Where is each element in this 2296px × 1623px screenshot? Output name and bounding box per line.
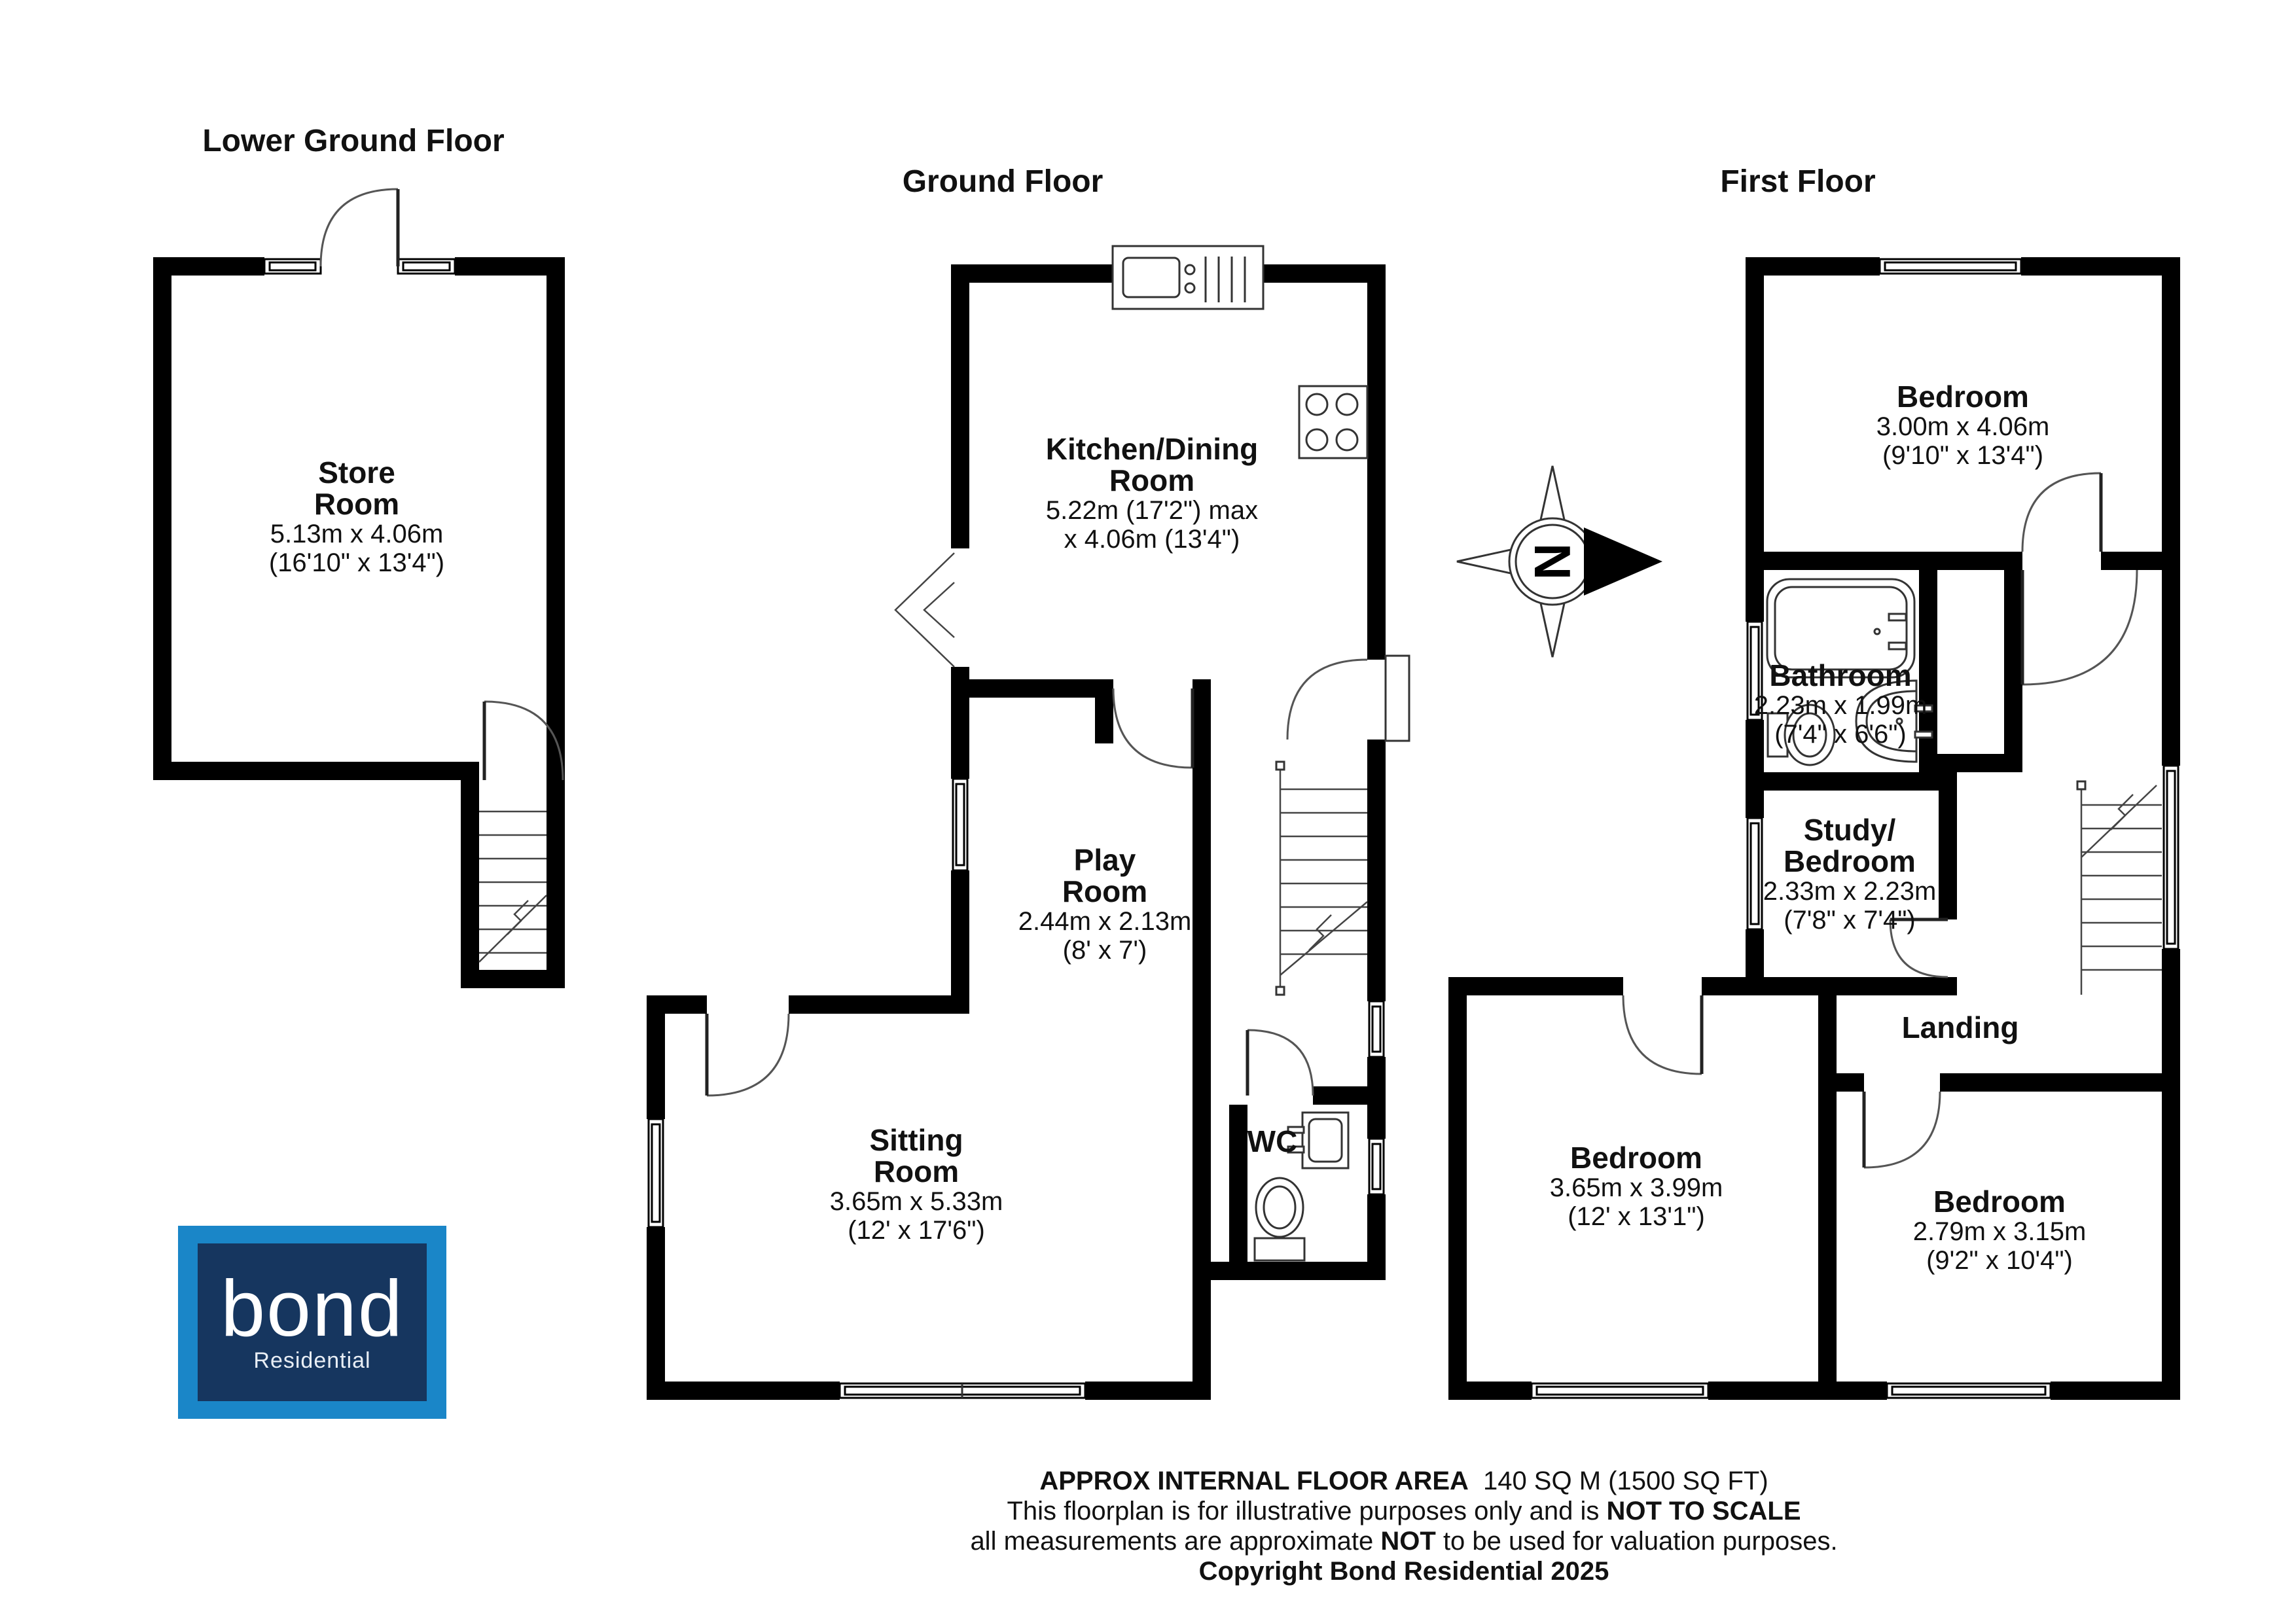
footer-floor-area: APPROX INTERNAL FLOOR AREA140 SQ M (1500… <box>1039 1466 1768 1496</box>
gf-kitchen-sink <box>1113 246 1263 309</box>
room-label-bedroom-1: Bedroom 3.00m x 4.06m (9'10" x 13'4") <box>1876 381 2050 470</box>
logo-inner-panel: bond Residential <box>198 1243 427 1401</box>
compass-letter: N <box>1524 543 1581 580</box>
footer-copyright: Copyright Bond Residential 2025 <box>1199 1556 1609 1586</box>
bond-residential-logo: bond Residential <box>178 1226 446 1419</box>
room-label-bathroom: Bathroom 2.23m x 1.99m (7'4" x 6'6") <box>1754 660 1928 749</box>
floor-title-first: First Floor <box>1720 164 1875 200</box>
gf-hob <box>1299 386 1367 458</box>
room-label-landing: Landing <box>1902 1012 2019 1043</box>
north-compass-icon: N <box>1457 466 1662 657</box>
room-label-study-bedroom: Study/ Bedroom 2.33m x 2.23m (7'8" x 7'4… <box>1763 814 1937 935</box>
room-label-bedroom-2: Bedroom 3.65m x 3.99m (12' x 13'1") <box>1550 1142 1723 1231</box>
room-label-wc: WC <box>1247 1126 1298 1157</box>
footer-measurements: all measurements are approximate NOT to … <box>970 1526 1837 1556</box>
room-label-kitchen-dining: Kitchen/Dining Room 5.22m (17'2") max x … <box>1046 433 1259 554</box>
room-label-sitting-room: Sitting Room 3.65m x 5.33m (12' x 17'6") <box>830 1124 1003 1245</box>
room-label-bedroom-3: Bedroom 2.79m x 3.15m (9'2" x 10'4") <box>1913 1186 2087 1275</box>
floor-title-ground: Ground Floor <box>903 164 1103 200</box>
gf-plan <box>647 246 1409 1400</box>
lgf-walls <box>153 257 565 988</box>
footer-not-to-scale: This floorplan is for illustrative purpo… <box>1007 1496 1801 1526</box>
floorplan-page: N Lower Ground Floor Ground Floor First … <box>0 0 2296 1623</box>
lgf-windows <box>264 257 455 276</box>
gf-bay-zigzag <box>895 553 954 667</box>
lgf-plan <box>153 189 565 988</box>
logo-brand-text: bond <box>221 1272 403 1344</box>
room-label-store: Store Room 5.13m x 4.06m (16'10" x 13'4"… <box>269 457 444 577</box>
room-label-play-room: Play Room 2.44m x 2.13m (8' x 7') <box>1018 844 1192 965</box>
floor-title-lower-ground: Lower Ground Floor <box>202 123 504 159</box>
logo-sub-text: Residential <box>253 1348 370 1373</box>
